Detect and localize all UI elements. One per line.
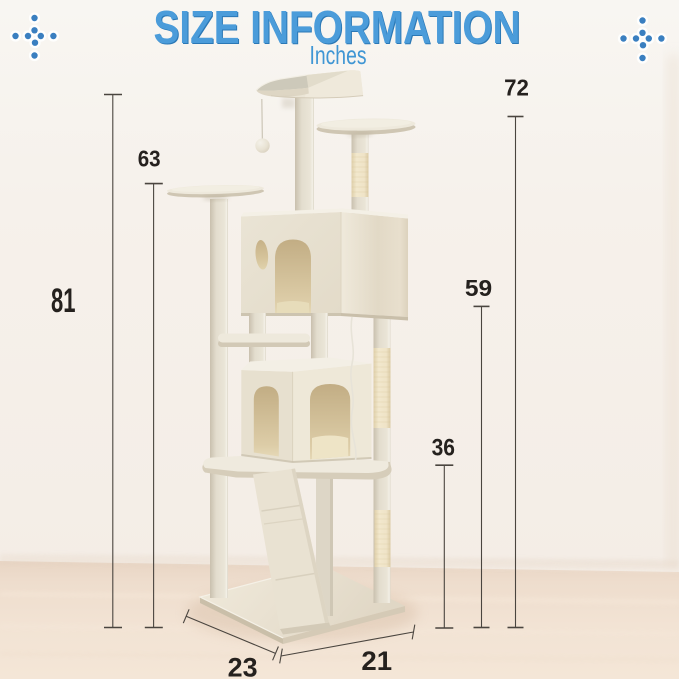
svg-text:81: 81 — [51, 282, 76, 320]
svg-text:23: 23 — [228, 653, 258, 679]
svg-text:21: 21 — [361, 646, 392, 676]
svg-text:63: 63 — [138, 146, 161, 172]
svg-text:59: 59 — [465, 275, 492, 301]
svg-text:72: 72 — [504, 74, 529, 100]
svg-text:Inches: Inches — [310, 40, 367, 70]
svg-text:36: 36 — [432, 435, 455, 462]
